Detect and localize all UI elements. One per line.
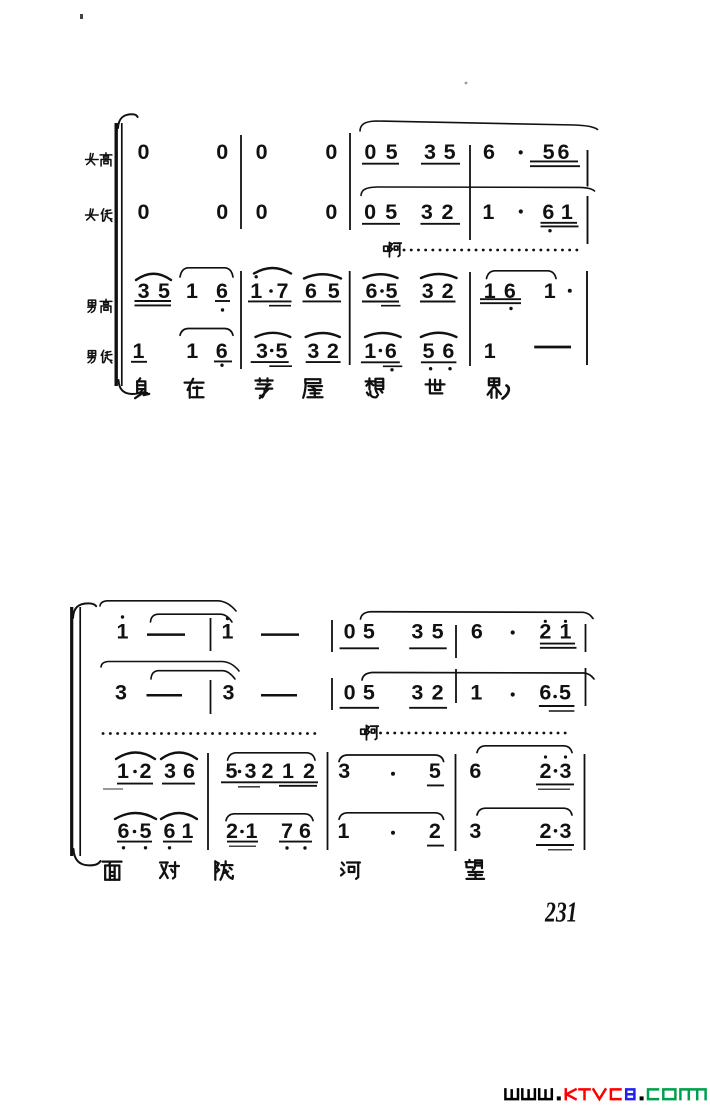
svg-text:0: 0 [256, 200, 268, 224]
svg-text:2: 2 [303, 759, 315, 783]
svg-text:6: 6 [216, 279, 228, 303]
svg-text:5: 5 [328, 279, 340, 303]
svg-text:3: 3 [338, 759, 350, 783]
svg-text:3: 3 [307, 339, 319, 363]
svg-text:6: 6 [483, 140, 495, 164]
svg-text:2: 2 [429, 819, 441, 843]
svg-text:1: 1 [338, 819, 350, 843]
svg-text:1: 1 [544, 279, 556, 303]
svg-text:2: 2 [262, 759, 274, 783]
svg-text:6: 6 [299, 819, 311, 843]
svg-text:6: 6 [558, 140, 570, 164]
svg-text:1: 1 [484, 339, 496, 363]
svg-text:1: 1 [186, 279, 198, 303]
svg-text:2: 2 [442, 200, 454, 224]
svg-text:5: 5 [363, 680, 375, 704]
svg-text:5: 5 [543, 140, 555, 164]
svg-text:6: 6 [542, 200, 554, 224]
svg-text:0: 0 [216, 200, 228, 224]
svg-text:2: 2 [540, 759, 552, 783]
svg-text:1: 1 [482, 200, 494, 224]
svg-text:3: 3 [421, 200, 433, 224]
svg-text:5: 5 [140, 819, 152, 843]
svg-text:5: 5 [386, 279, 398, 303]
svg-text:5: 5 [423, 339, 435, 363]
svg-text:3: 3 [411, 680, 423, 704]
svg-text:3: 3 [424, 140, 436, 164]
svg-text:5: 5 [429, 759, 441, 783]
svg-text:0: 0 [344, 680, 356, 704]
svg-text:3: 3 [138, 279, 150, 303]
svg-text:231: 231 [544, 897, 577, 929]
svg-text:3: 3 [115, 680, 127, 704]
svg-text:1: 1 [250, 279, 262, 303]
svg-text:2: 2 [539, 619, 551, 643]
svg-text:1: 1 [470, 680, 482, 704]
svg-text:5: 5 [363, 619, 375, 643]
svg-text:1: 1 [561, 200, 573, 224]
svg-text:1: 1 [246, 819, 258, 843]
svg-text:0: 0 [325, 140, 337, 164]
svg-text:0: 0 [256, 140, 268, 164]
svg-text:1: 1 [364, 339, 376, 363]
svg-text:1: 1 [117, 759, 129, 783]
svg-text:3: 3 [560, 759, 572, 783]
svg-text:1: 1 [186, 339, 198, 363]
svg-text:6: 6 [366, 279, 378, 303]
svg-text:0: 0 [364, 140, 376, 164]
svg-text:3: 3 [469, 819, 481, 843]
svg-text:7: 7 [281, 819, 293, 843]
svg-text:1: 1 [222, 619, 234, 643]
svg-text:0: 0 [325, 200, 337, 224]
svg-text:0: 0 [138, 140, 150, 164]
svg-text:3: 3 [422, 279, 434, 303]
svg-text:5: 5 [226, 759, 238, 783]
svg-text:5: 5 [158, 279, 170, 303]
svg-text:2: 2 [226, 819, 238, 843]
svg-text:6: 6 [216, 339, 228, 363]
svg-text:7: 7 [277, 279, 289, 303]
svg-text:5: 5 [276, 339, 288, 363]
svg-text:1: 1 [182, 819, 194, 843]
svg-text:6: 6 [183, 759, 195, 783]
svg-text:1: 1 [133, 339, 145, 363]
svg-text:6: 6 [164, 819, 176, 843]
svg-text:6: 6 [442, 339, 454, 363]
svg-text:5: 5 [444, 140, 456, 164]
svg-text:6: 6 [305, 279, 317, 303]
svg-text:0: 0 [364, 200, 376, 224]
svg-text:3: 3 [411, 619, 423, 643]
svg-text:3: 3 [256, 339, 268, 363]
svg-text:5: 5 [386, 140, 398, 164]
svg-text:6: 6 [118, 819, 130, 843]
svg-text:0: 0 [216, 140, 228, 164]
svg-text:0: 0 [138, 200, 150, 224]
svg-text:2: 2 [432, 680, 444, 704]
svg-text:0: 0 [344, 619, 356, 643]
svg-text:1: 1 [560, 619, 572, 643]
svg-text:2: 2 [442, 279, 454, 303]
svg-text:2: 2 [540, 819, 552, 843]
svg-text:3: 3 [164, 759, 176, 783]
svg-text:3: 3 [245, 759, 257, 783]
svg-text:6: 6 [469, 759, 481, 783]
svg-text:1: 1 [282, 759, 294, 783]
svg-text:1: 1 [117, 619, 129, 643]
svg-text:3: 3 [560, 819, 572, 843]
svg-text:5: 5 [385, 200, 397, 224]
svg-text:3: 3 [223, 680, 235, 704]
svg-text:2: 2 [327, 339, 339, 363]
svg-text:6: 6 [385, 339, 397, 363]
svg-text:6: 6 [539, 680, 551, 704]
svg-text:5: 5 [559, 680, 571, 704]
svg-text:6: 6 [471, 619, 483, 643]
svg-text:5: 5 [432, 619, 444, 643]
svg-text:2: 2 [140, 759, 152, 783]
